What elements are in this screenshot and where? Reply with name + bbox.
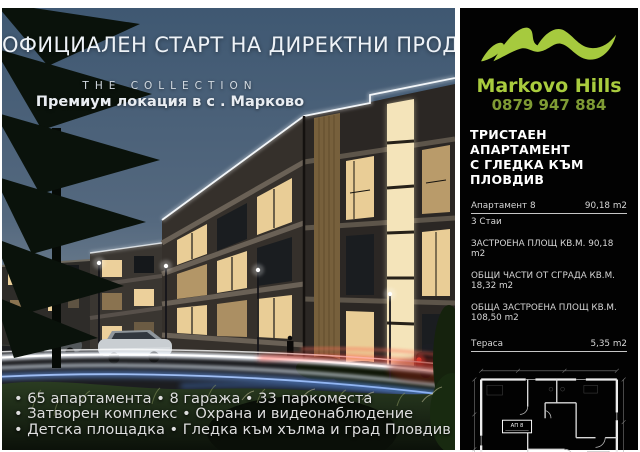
building-render-image (2, 8, 455, 450)
phone-number: 0879 947 884 (460, 97, 638, 114)
mountain-logo-icon (474, 20, 624, 76)
floor-plan-drawing: АП 8 (467, 364, 631, 452)
collection-label: THE COLLECTION (2, 80, 338, 92)
feature-line: • Затворен комплекс • Охрана и видеонабл… (14, 406, 451, 421)
feature-line: • Детска площадка • Гледка към хълма и г… (14, 422, 451, 437)
listing-info-panel: Markovo Hills 0879 947 884 ТРИСТАЕН АПАР… (460, 8, 638, 450)
terrace-label: Тераса (471, 339, 503, 349)
common-parts-row: ОБЩИ ЧАСТИ ОТ СГРАДА КВ.М. 18,32 m2 (471, 271, 627, 291)
brand-name: Markovo Hills (460, 76, 638, 96)
listing-details: Апартамент 8 90,18 m2 3 Стаи ЗАСТРОЕНА П… (471, 201, 627, 352)
apartment-headline-line2: С ГЛЕДКА КЪМ ПЛОВДИВ (470, 157, 628, 187)
apartment-headline-line1: ТРИСТАЕН АПАРТАМЕНТ (470, 127, 628, 157)
unit-area: 90,18 m2 (585, 201, 627, 211)
built-area-row: ЗАСТРОЕНА ПЛОЩ КВ.М. 90,18 m2 (471, 239, 627, 259)
unit-row: Апартамент 8 90,18 m2 (471, 201, 627, 214)
location-subtitle: Премиум локация в с . Марково (2, 94, 338, 110)
building-photo-section: ОФИЦИАЛЕН СТАРТ НА ДИРЕКТНИ ПРОДАЖБИ THE… (2, 8, 455, 450)
flyer-canvas: ОФИЦИАЛЕН СТАРТ НА ДИРЕКТНИ ПРОДАЖБИ THE… (0, 0, 640, 452)
feature-line: • 65 апартамента • 8 гаража • 33 паркоме… (14, 391, 451, 406)
terrace-area: 5,35 m2 (590, 339, 627, 349)
sales-start-title: ОФИЦИАЛЕН СТАРТ НА ДИРЕКТНИ ПРОДАЖБИ (2, 33, 455, 57)
floor-plan-unit-label: АП 8 (511, 423, 524, 429)
total-area-row: ОБЩА ЗАСТРОЕНА ПЛОЩ КВ.М. 108,50 m2 (471, 303, 627, 323)
rooms-count: 3 Стаи (471, 217, 627, 227)
unit-label: Апартамент 8 (471, 201, 536, 211)
apartment-headline: ТРИСТАЕН АПАРТАМЕНТ С ГЛЕДКА КЪМ ПЛОВДИВ (470, 127, 628, 187)
terrace-row: Тераса 5,35 m2 (471, 339, 627, 352)
feature-list: • 65 апартамента • 8 гаража • 33 паркоме… (14, 391, 451, 437)
